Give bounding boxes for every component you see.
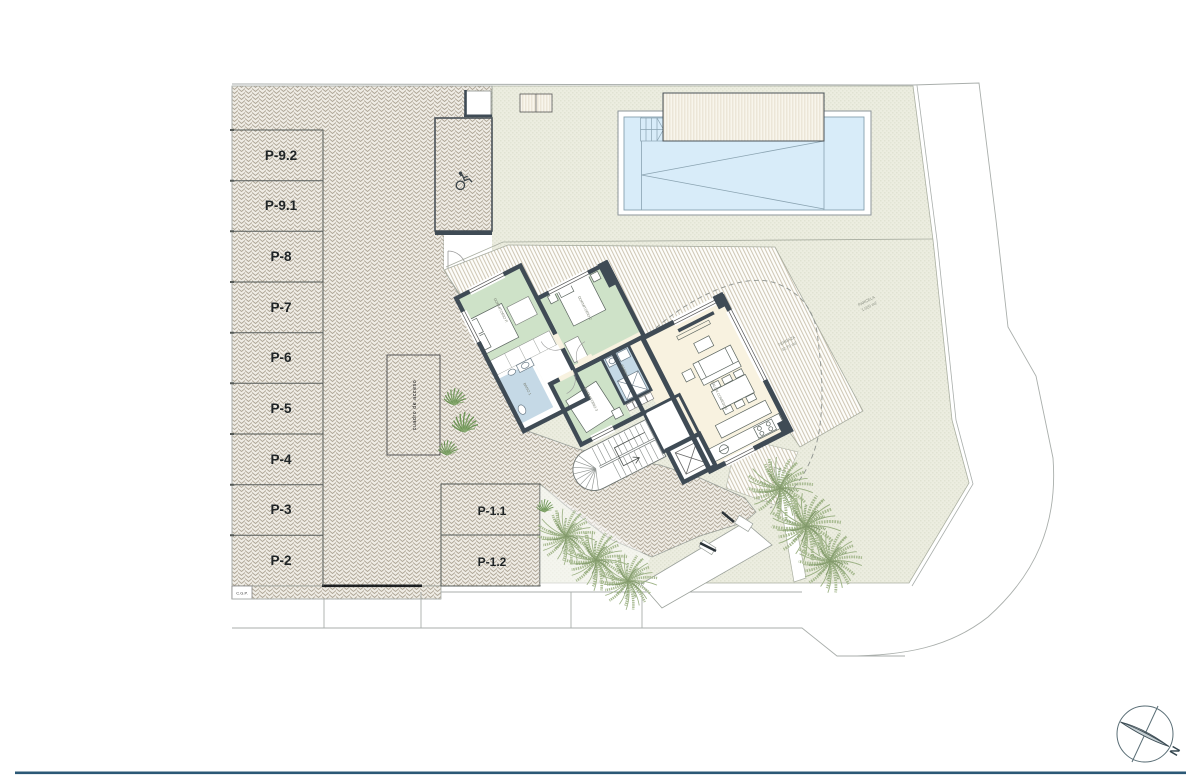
svg-text:P-2: P-2 [270,553,291,568]
svg-text:P-7: P-7 [270,300,291,315]
svg-text:P-3: P-3 [270,502,292,517]
svg-text:cuadro de acceso: cuadro de acceso [412,380,418,431]
svg-text:P-9.1: P-9.1 [265,198,298,213]
svg-text:P-1.1: P-1.1 [478,504,507,518]
svg-text:P-6: P-6 [270,350,292,365]
svg-text:P-1.2: P-1.2 [478,555,507,569]
svg-text:P-5: P-5 [270,401,292,416]
svg-text:P-4: P-4 [270,452,292,467]
svg-text:C.G.P.: C.G.P. [236,591,248,596]
svg-text:P-9.2: P-9.2 [265,148,297,163]
svg-text:P-8: P-8 [270,249,292,264]
